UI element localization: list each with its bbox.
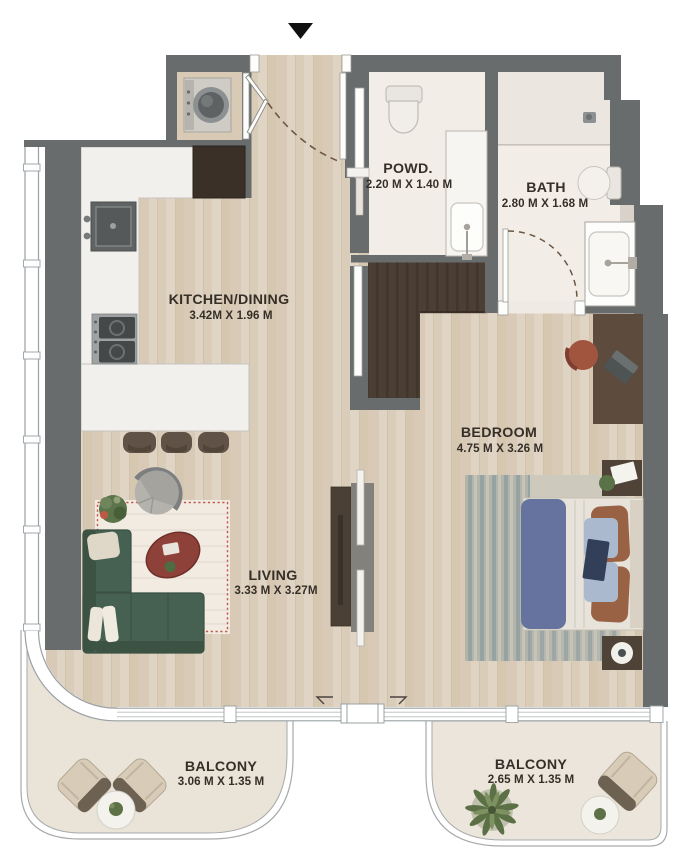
svg-text:2.20 M X 1.40 M: 2.20 M X 1.40 M: [366, 178, 453, 191]
svg-text:BALCONY: BALCONY: [185, 759, 257, 775]
svg-text:2.80 M X 1.68 M: 2.80 M X 1.68 M: [502, 197, 589, 210]
svg-text:POWD.: POWD.: [383, 161, 433, 177]
svg-text:3.06 M X 1.35 M: 3.06 M X 1.35 M: [178, 775, 265, 788]
svg-text:4.75 M X 3.26 M: 4.75 M X 3.26 M: [457, 442, 544, 455]
svg-text:BATH: BATH: [526, 180, 566, 196]
svg-text:BALCONY: BALCONY: [495, 757, 567, 773]
svg-text:KITCHEN/DINING: KITCHEN/DINING: [169, 292, 290, 308]
svg-text:3.42M X 1.96 M: 3.42M X 1.96 M: [189, 309, 272, 322]
svg-text:LIVING: LIVING: [248, 568, 297, 584]
svg-text:3.33 M X 3.27M: 3.33 M X 3.27M: [234, 584, 317, 597]
svg-text:2.65 M X 1.35 M: 2.65 M X 1.35 M: [488, 773, 575, 786]
svg-text:BEDROOM: BEDROOM: [461, 425, 537, 441]
